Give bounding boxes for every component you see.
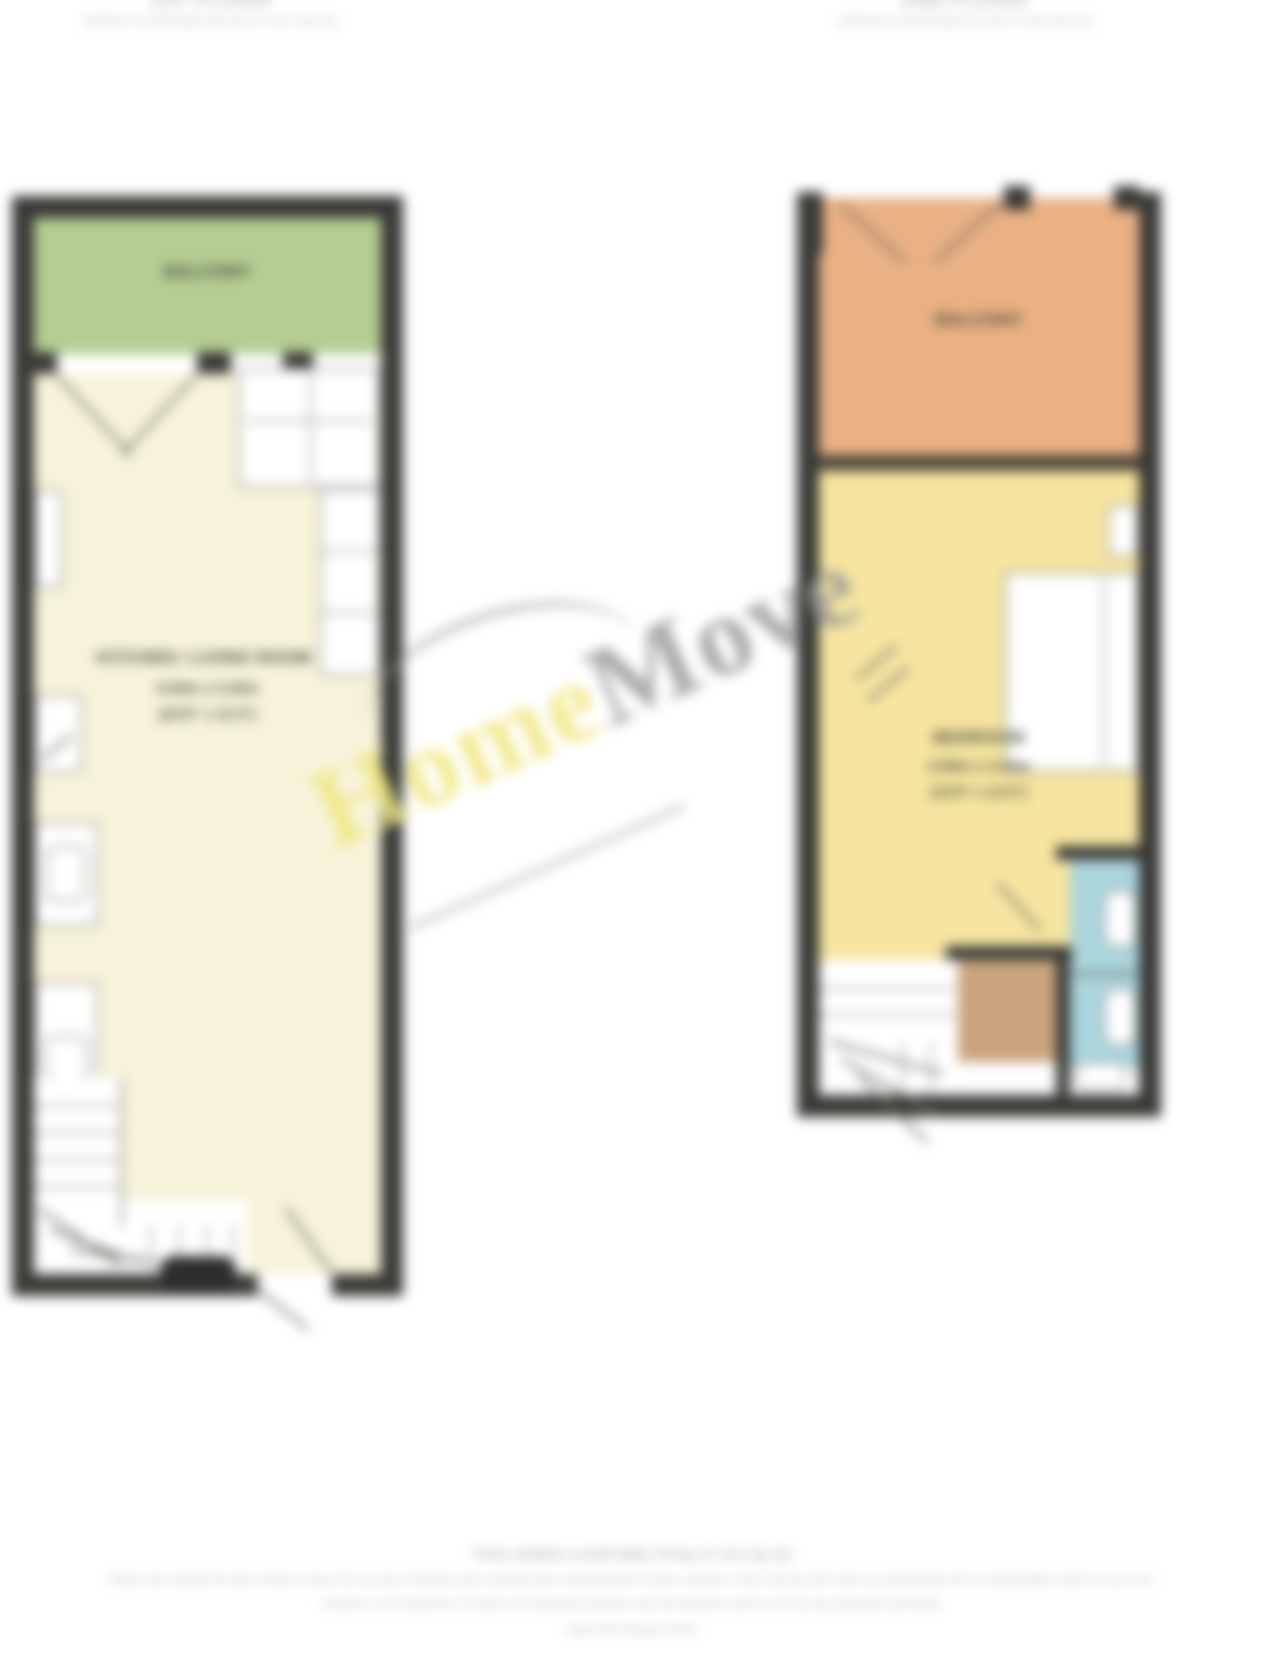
stair-rail xyxy=(120,1078,123,1228)
wall-segment xyxy=(819,455,1139,471)
footer-disclaimer-line: Whilst every attempt has been made to en… xyxy=(0,1574,1264,1586)
footer-total-area: TOTAL APPROX. FLOOR AREA 778 SQ. FT. (72… xyxy=(0,1548,1264,1562)
basin xyxy=(1104,890,1136,948)
stair-tread xyxy=(150,1225,152,1274)
railing-post xyxy=(1004,186,1030,210)
wall-segment xyxy=(1056,846,1139,860)
stair-tread xyxy=(34,1132,120,1134)
stair-tread xyxy=(930,1042,932,1095)
bedside-table xyxy=(1108,505,1138,557)
kitchen-unit xyxy=(34,490,62,588)
wall-segment xyxy=(946,946,1072,960)
first-floor-area-text: APPROX. FLOOR AREA 507 SQ. FT. (47.1 SQ.… xyxy=(15,16,405,28)
bath-fixture xyxy=(1076,1062,1126,1090)
wall-segment xyxy=(1139,192,1161,1117)
wall-segment xyxy=(12,196,403,218)
sofa-cushion-line xyxy=(310,368,312,488)
stair-tread xyxy=(34,1186,120,1188)
toilet xyxy=(1104,988,1136,1046)
watermark-move-text: Move xyxy=(568,520,878,751)
sofa xyxy=(238,368,380,488)
stair-tread xyxy=(34,1159,120,1161)
wall-segment xyxy=(1056,946,1070,1095)
second-floor-area-text: APPROX. FLOOR AREA 271 SQ. FT. (25.2 SQ.… xyxy=(765,16,1165,28)
terrace-label: BALCONY xyxy=(819,310,1139,330)
wall-segment xyxy=(332,1274,403,1296)
kitchen-appliance-door xyxy=(44,1036,88,1080)
second-floor-title: 2ND FLOOR xyxy=(790,0,1140,12)
sofa-cushion-line xyxy=(246,420,372,422)
wall-segment xyxy=(797,1095,1161,1117)
stairs xyxy=(819,960,956,1095)
stair-tread xyxy=(819,988,956,990)
floorplan-scene: 1ST FLOOR APPROX. FLOOR AREA 507 SQ. FT.… xyxy=(0,0,1264,1658)
door-swing-line xyxy=(251,1284,310,1331)
footer-disclaimer-line: omission, or mis-statement. This plan is… xyxy=(0,1598,1264,1610)
balcony-label: BALCONY xyxy=(34,262,381,282)
kitchen-sink-bowl xyxy=(46,846,86,902)
wall-segment xyxy=(12,352,57,374)
shower-screen-line xyxy=(1072,972,1136,975)
landing-area xyxy=(958,1062,1058,1095)
stair-tread xyxy=(34,1105,120,1107)
footer-credit-line: Made with Metropix ©2024 xyxy=(0,1624,1264,1636)
balcony-area xyxy=(34,218,381,354)
sofa-cushion-line xyxy=(320,550,380,552)
stair-tread xyxy=(902,1042,904,1095)
floorplan-page: 1ST FLOOR APPROX. FLOOR AREA 507 SQ. FT.… xyxy=(0,0,1264,1658)
wall-segment xyxy=(197,352,231,374)
first-floor-title: 1ST FLOOR xyxy=(40,0,380,12)
dark-unit xyxy=(160,1256,236,1294)
railing-post xyxy=(797,192,823,254)
cupboard-area xyxy=(958,960,1058,1062)
homemove-watermark: HomeMove xyxy=(290,580,910,980)
railing-post xyxy=(1114,186,1140,210)
stair-tread xyxy=(819,1014,956,1016)
